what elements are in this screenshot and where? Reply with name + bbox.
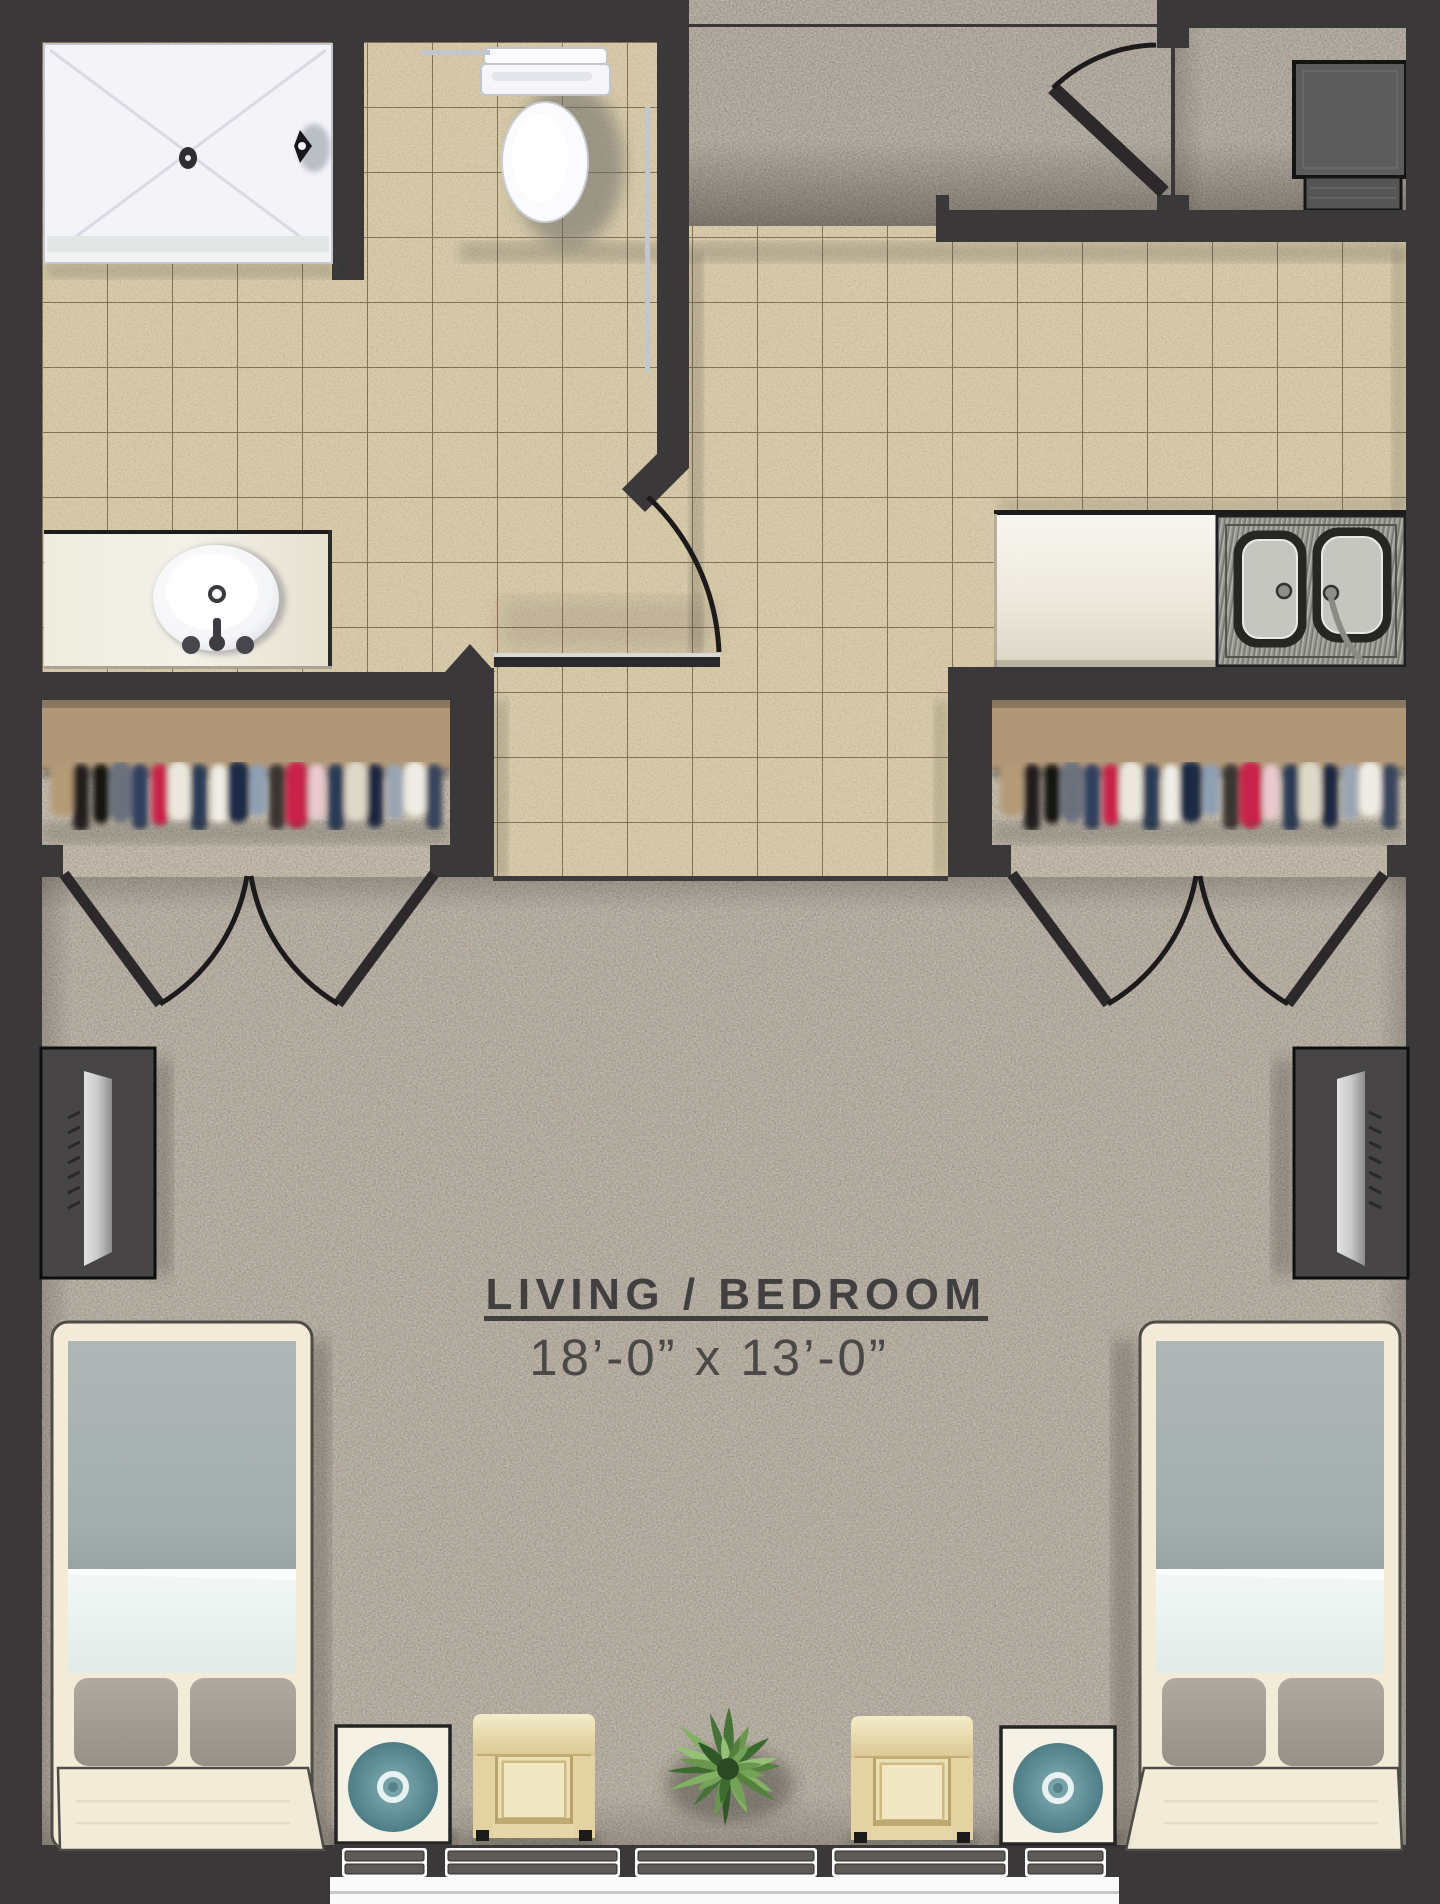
svg-text:18’-0” x 13’-0”: 18’-0” x 13’-0” (529, 1329, 889, 1386)
svg-text:LIVING / BEDROOM: LIVING / BEDROOM (485, 1270, 986, 1319)
